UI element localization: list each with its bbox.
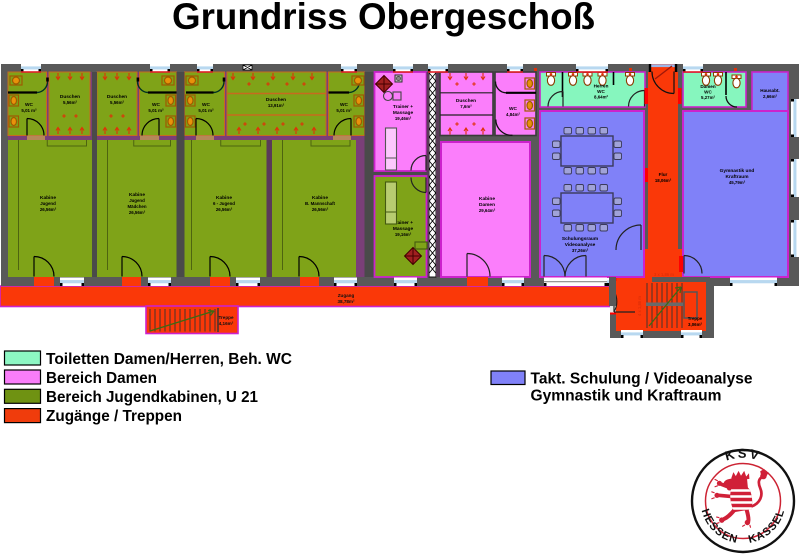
svg-text:Grundriss Obergeschoß: Grundriss Obergeschoß [172, 0, 595, 37]
svg-text:5,56m²: 5,56m² [63, 100, 77, 105]
svg-text:3 x 1,86 m: 3 x 1,86 m [654, 272, 674, 277]
svg-text:5,01 m²: 5,01 m² [336, 108, 352, 113]
svg-text:45,79m²: 45,79m² [729, 180, 746, 185]
svg-text:Treppe: Treppe [218, 315, 234, 320]
svg-text:Trainer +: Trainer + [393, 104, 413, 110]
svg-text:7,6m²: 7,6m² [460, 104, 472, 109]
svg-text:Treppe: Treppe [688, 316, 703, 321]
svg-text:WC: WC [704, 90, 712, 95]
svg-text:Zugang: Zugang [338, 293, 355, 298]
svg-text:26,56m²: 26,56m² [129, 210, 146, 215]
svg-text:Herren: Herren [594, 84, 609, 89]
svg-text:Bereich Jugendkabinen, U 21: Bereich Jugendkabinen, U 21 [46, 389, 258, 406]
svg-text:Kabine: Kabine [479, 196, 495, 202]
svg-text:19,16m²: 19,16m² [395, 232, 412, 237]
svg-text:26,56m²: 26,56m² [216, 207, 233, 212]
svg-text:Zugänge / Treppen: Zugänge / Treppen [46, 408, 182, 425]
svg-text:Bereich Damen: Bereich Damen [46, 370, 157, 387]
svg-text:WC: WC [597, 89, 605, 94]
svg-text:5,56m²: 5,56m² [110, 100, 124, 105]
svg-text:Mädchen: Mädchen [127, 204, 146, 209]
svg-text:5,01 m²: 5,01 m² [198, 108, 214, 113]
svg-text:Jugend: Jugend [40, 201, 56, 206]
svg-text:Damen: Damen [700, 84, 716, 89]
svg-text:Hausabt.: Hausabt. [760, 88, 779, 93]
svg-text:Jugend: Jugend [129, 198, 145, 203]
svg-text:3,06m²: 3,06m² [688, 322, 702, 327]
svg-text:Flur: Flur [659, 172, 668, 177]
svg-text:4,16m²: 4,16m² [219, 321, 234, 326]
svg-text:4,84m²: 4,84m² [506, 112, 520, 117]
svg-text:6 - Jugend: 6 - Jugend [213, 201, 235, 206]
svg-text:38,78m²: 38,78m² [337, 299, 355, 304]
svg-text:37,26m²: 37,26m² [572, 248, 589, 253]
svg-text:2,66m²: 2,66m² [763, 94, 777, 99]
svg-text:26,56m²: 26,56m² [312, 207, 329, 212]
svg-text:5,27m²: 5,27m² [701, 95, 715, 100]
svg-text:Schulungsraum: Schulungsraum [562, 236, 598, 242]
svg-text:8,64m²: 8,64m² [594, 95, 608, 100]
svg-text:26,56m²: 26,56m² [40, 207, 57, 212]
svg-text:29,64m²: 29,64m² [479, 208, 496, 213]
svg-text:Toiletten Damen/Herren, Beh. W: Toiletten Damen/Herren, Beh. WC [46, 351, 292, 368]
svg-text:5,01 m²: 5,01 m² [21, 108, 37, 113]
svg-text:Gymnastik und: Gymnastik und [720, 168, 755, 174]
svg-text:4 x 1,86 m: 4 x 1,86 m [637, 296, 642, 316]
svg-text:19,46m²: 19,46m² [395, 116, 412, 121]
svg-text:5,01 m²: 5,01 m² [148, 108, 164, 113]
svg-text:18,06m²: 18,06m² [655, 178, 672, 183]
svg-text:Takt. Schulung / Videoanalyse: Takt. Schulung / Videoanalyse [531, 371, 753, 388]
svg-text:13,91m²: 13,91m² [268, 103, 285, 108]
svg-text:B. Mannschaft: B. Mannschaft [305, 201, 336, 206]
svg-text:Gymnastik und Kraftraum: Gymnastik und Kraftraum [531, 388, 722, 405]
